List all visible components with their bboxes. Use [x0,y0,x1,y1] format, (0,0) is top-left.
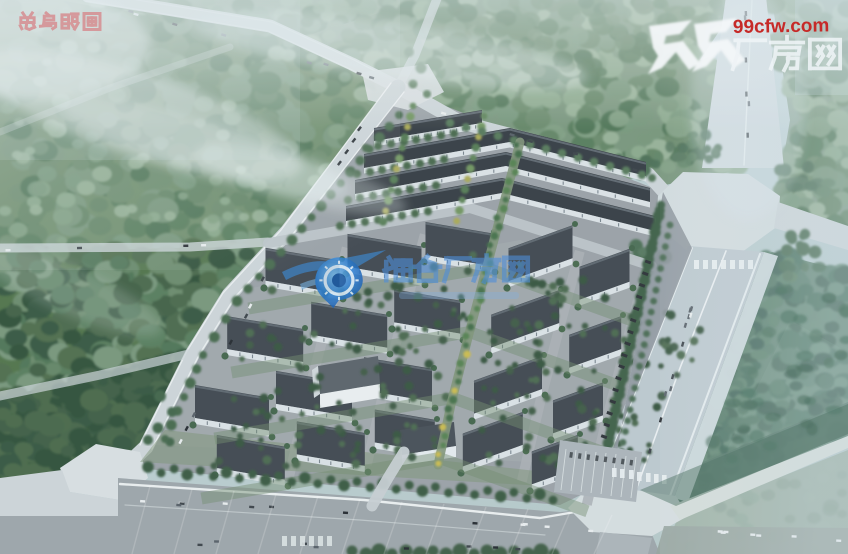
svg-text:99cfw.com: 99cfw.com [733,15,830,38]
